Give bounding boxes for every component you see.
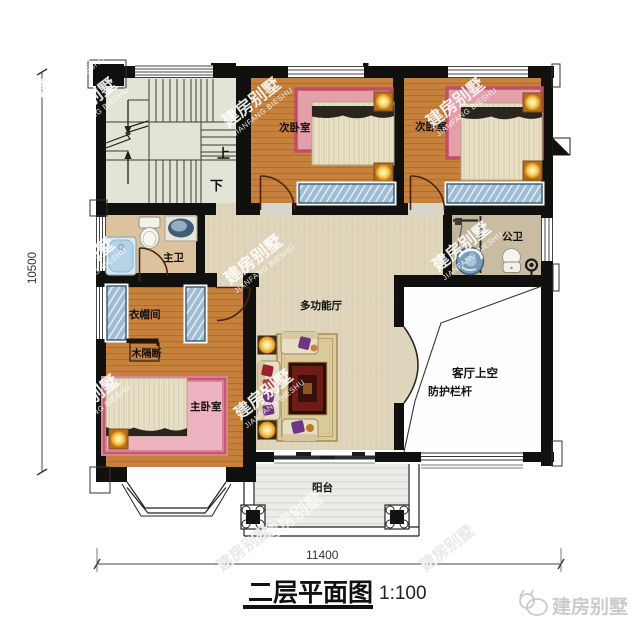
svg-text:主卫: 主卫 bbox=[163, 251, 184, 264]
svg-text:防护栏杆: 防护栏杆 bbox=[428, 384, 472, 398]
svg-text:下: 下 bbox=[210, 178, 223, 193]
svg-text:木隔断: 木隔断 bbox=[131, 347, 162, 360]
svg-text:客厅上空: 客厅上空 bbox=[451, 366, 498, 380]
svg-text:11400: 11400 bbox=[306, 548, 339, 562]
svg-text:建房别墅: 建房别墅 bbox=[552, 595, 628, 618]
svg-text:多功能厅: 多功能厅 bbox=[300, 299, 342, 312]
svg-text:次卧室: 次卧室 bbox=[279, 121, 311, 134]
svg-text:上: 上 bbox=[217, 146, 230, 161]
svg-text:主卧室: 主卧室 bbox=[190, 400, 222, 413]
svg-text:衣帽间: 衣帽间 bbox=[129, 308, 161, 321]
svg-text:公卫: 公卫 bbox=[502, 231, 523, 243]
svg-text:1:100: 1:100 bbox=[379, 583, 427, 604]
svg-text:二层平面图: 二层平面图 bbox=[248, 579, 373, 607]
svg-text:10500: 10500 bbox=[27, 252, 39, 284]
